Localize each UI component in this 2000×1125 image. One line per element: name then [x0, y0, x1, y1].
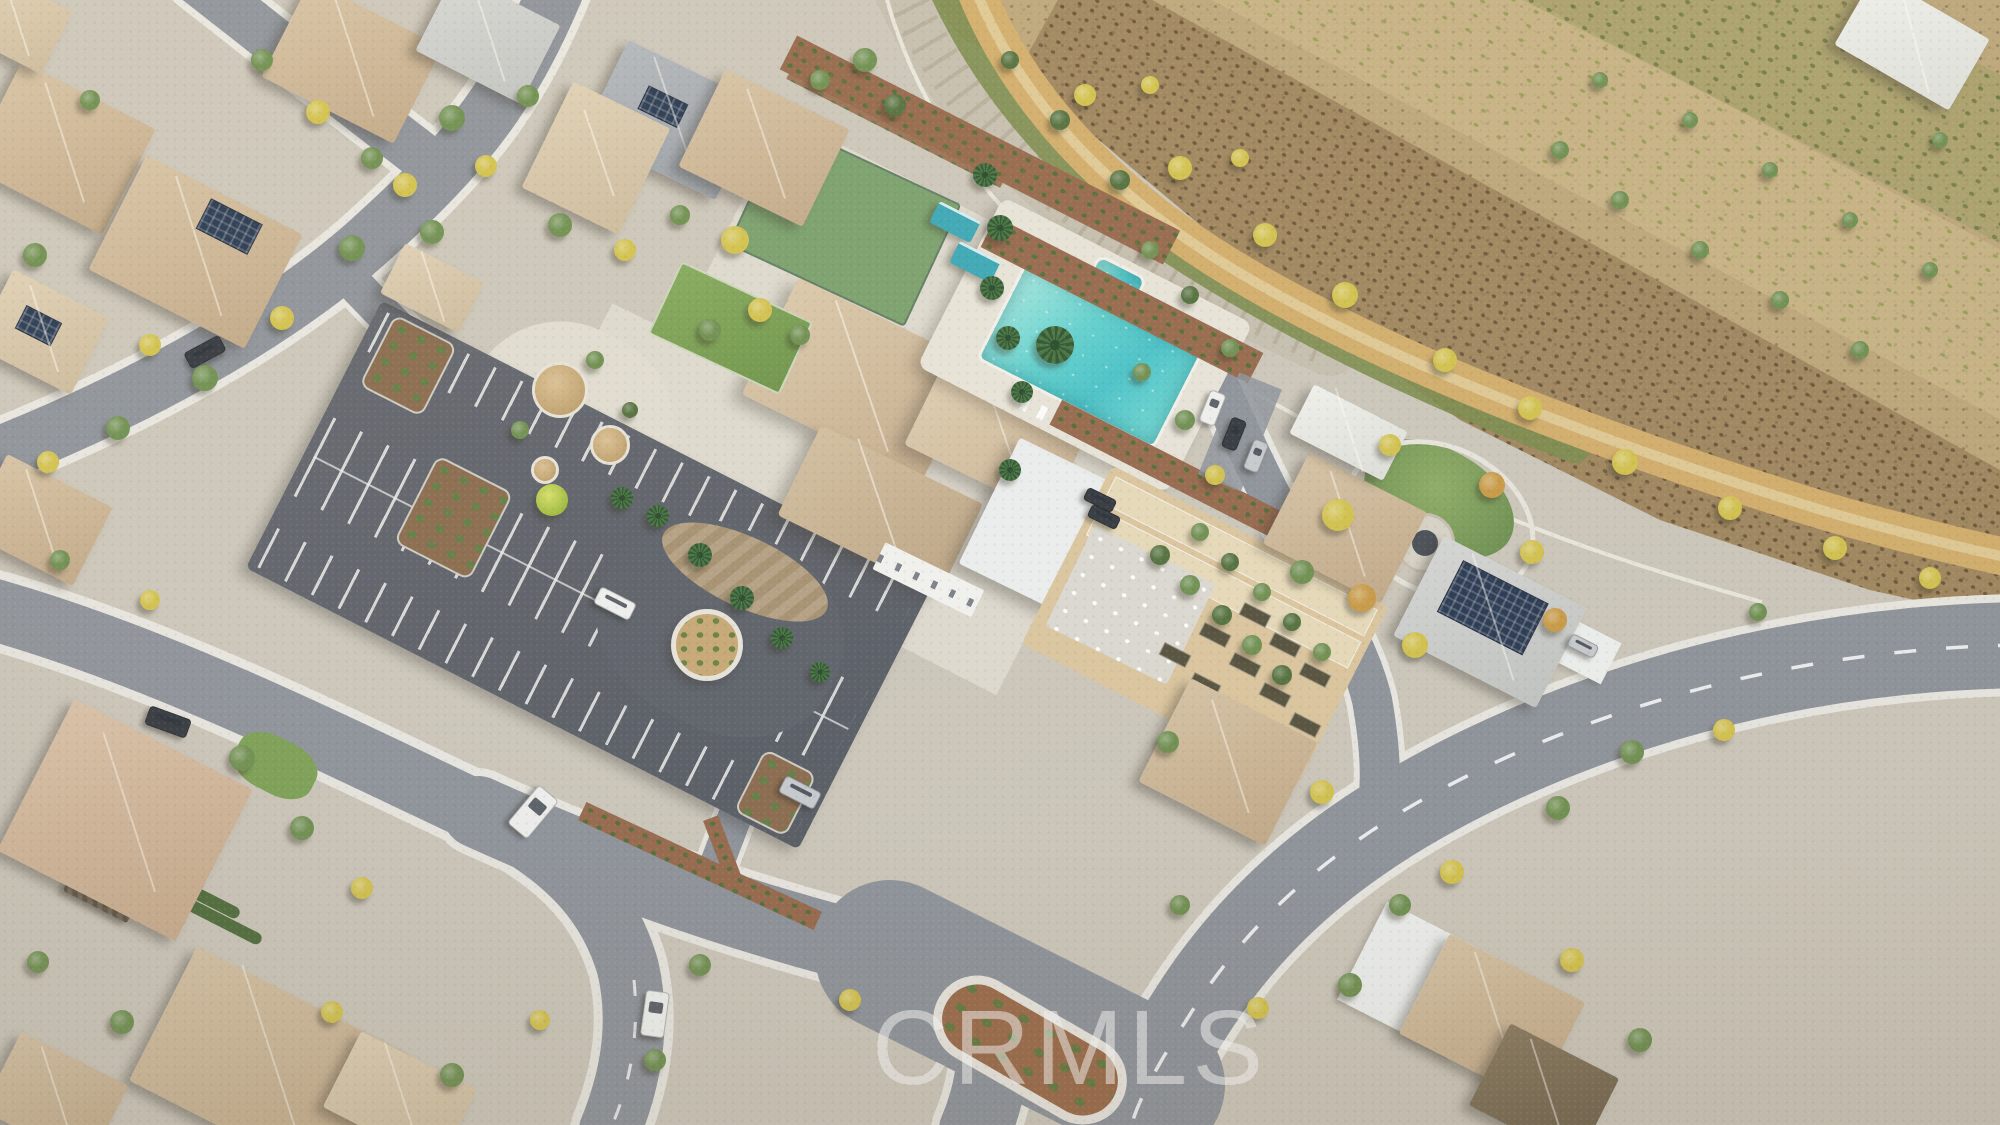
- tree: [1348, 584, 1376, 612]
- tree: [1628, 1028, 1652, 1052]
- tree: [1157, 731, 1179, 753]
- tree: [1272, 665, 1292, 685]
- palm-tree: [810, 662, 830, 682]
- tree: [1379, 434, 1401, 456]
- tree: [475, 155, 497, 177]
- tree: [530, 1010, 550, 1030]
- tree: [351, 877, 373, 899]
- tree: [1919, 567, 1941, 589]
- tree: [1221, 553, 1239, 571]
- palm-tree: [973, 163, 997, 187]
- tree: [810, 70, 830, 90]
- tree: [1338, 973, 1362, 997]
- tree: [748, 298, 772, 322]
- palm-tree: [996, 326, 1020, 350]
- tree: [790, 325, 810, 345]
- tree: [1180, 575, 1200, 595]
- tree: [1253, 583, 1271, 601]
- tree: [1141, 76, 1159, 94]
- tree: [1691, 241, 1709, 259]
- tree: [106, 416, 130, 440]
- tree: [139, 334, 161, 356]
- trees: [0, 0, 2000, 1125]
- tree: [420, 220, 444, 244]
- tree: [1612, 449, 1638, 475]
- tree: [1440, 860, 1464, 884]
- tree: [1242, 635, 1262, 655]
- tree: [1191, 523, 1209, 541]
- tree: [321, 1001, 343, 1023]
- tree: [1620, 740, 1644, 764]
- palm-tree: [980, 276, 1004, 300]
- tree: [1253, 223, 1277, 247]
- tree: [644, 1049, 666, 1071]
- tree: [622, 402, 638, 418]
- tree: [1221, 339, 1239, 357]
- tree: [1520, 540, 1544, 564]
- palm-tree: [999, 459, 1021, 481]
- tree: [339, 235, 365, 261]
- tree: [1181, 286, 1199, 304]
- tree: [1313, 643, 1331, 661]
- tree: [1150, 545, 1170, 565]
- tree: [1518, 396, 1542, 420]
- tree: [1718, 496, 1742, 520]
- tree: [1389, 894, 1411, 916]
- palm-tree: [987, 215, 1013, 241]
- tree: [1922, 262, 1938, 278]
- tree: [548, 213, 572, 237]
- tree: [1842, 212, 1858, 228]
- palm-tree: [771, 627, 793, 649]
- tree: [439, 105, 465, 131]
- tree: [1212, 605, 1232, 625]
- tree: [1433, 348, 1457, 372]
- tree: [27, 951, 49, 973]
- tree: [1611, 191, 1629, 209]
- tree: [251, 49, 273, 71]
- tree: [1762, 162, 1778, 178]
- tree: [361, 147, 383, 169]
- tree: [670, 205, 690, 225]
- tree: [511, 421, 529, 439]
- tree: [721, 226, 749, 254]
- tree: [1133, 363, 1151, 381]
- tree: [1402, 632, 1428, 658]
- tree: [1231, 149, 1249, 167]
- tree: [853, 48, 877, 72]
- palm-tree: [1011, 381, 1033, 403]
- tree: [440, 1063, 464, 1087]
- mls-watermark: CRMLS: [872, 988, 1268, 1109]
- tree: [1290, 560, 1314, 584]
- tree: [23, 243, 47, 267]
- tree: [1543, 608, 1567, 632]
- tree: [1205, 465, 1225, 485]
- tree: [1823, 536, 1847, 560]
- tree: [393, 173, 417, 197]
- tree: [1168, 156, 1192, 180]
- tree: [614, 239, 636, 261]
- tree: [586, 351, 604, 369]
- tree: [884, 94, 906, 116]
- tree: [1175, 410, 1195, 430]
- tree: [1110, 170, 1130, 190]
- tree: [1141, 241, 1159, 259]
- tree: [80, 90, 100, 110]
- palm-tree: [1036, 326, 1074, 364]
- tree: [1551, 141, 1569, 159]
- palm-tree: [688, 543, 712, 567]
- tree: [517, 85, 539, 107]
- tree: [1170, 895, 1190, 915]
- palm-tree: [611, 487, 633, 509]
- palm-tree: [730, 586, 754, 610]
- tree: [1283, 613, 1301, 631]
- tree: [192, 365, 218, 391]
- tree: [1479, 472, 1505, 498]
- tree: [1851, 341, 1869, 359]
- tree: [1682, 112, 1698, 128]
- tree: [1074, 84, 1096, 106]
- tree: [270, 306, 294, 330]
- tree: [689, 954, 711, 976]
- tree: [839, 989, 861, 1011]
- tree: [50, 550, 70, 570]
- tree: [1001, 51, 1019, 69]
- tree: [229, 745, 255, 771]
- palm-tree: [647, 505, 669, 527]
- tree: [1713, 719, 1735, 741]
- tree: [1050, 110, 1070, 130]
- tree: [1310, 780, 1334, 804]
- tree: [140, 590, 160, 610]
- tree: [1592, 72, 1608, 88]
- aerial-photo: CRMLS: [0, 0, 2000, 1125]
- tree: [1332, 282, 1358, 308]
- tree: [1546, 796, 1570, 820]
- tree: [1771, 291, 1789, 309]
- tree: [110, 1010, 134, 1034]
- tree: [37, 451, 59, 473]
- tree: [306, 100, 330, 124]
- tree: [1322, 499, 1354, 531]
- tree: [1749, 603, 1767, 621]
- tree: [699, 319, 721, 341]
- tree: [1560, 948, 1584, 972]
- tree: [290, 816, 314, 840]
- tree: [1932, 132, 1948, 148]
